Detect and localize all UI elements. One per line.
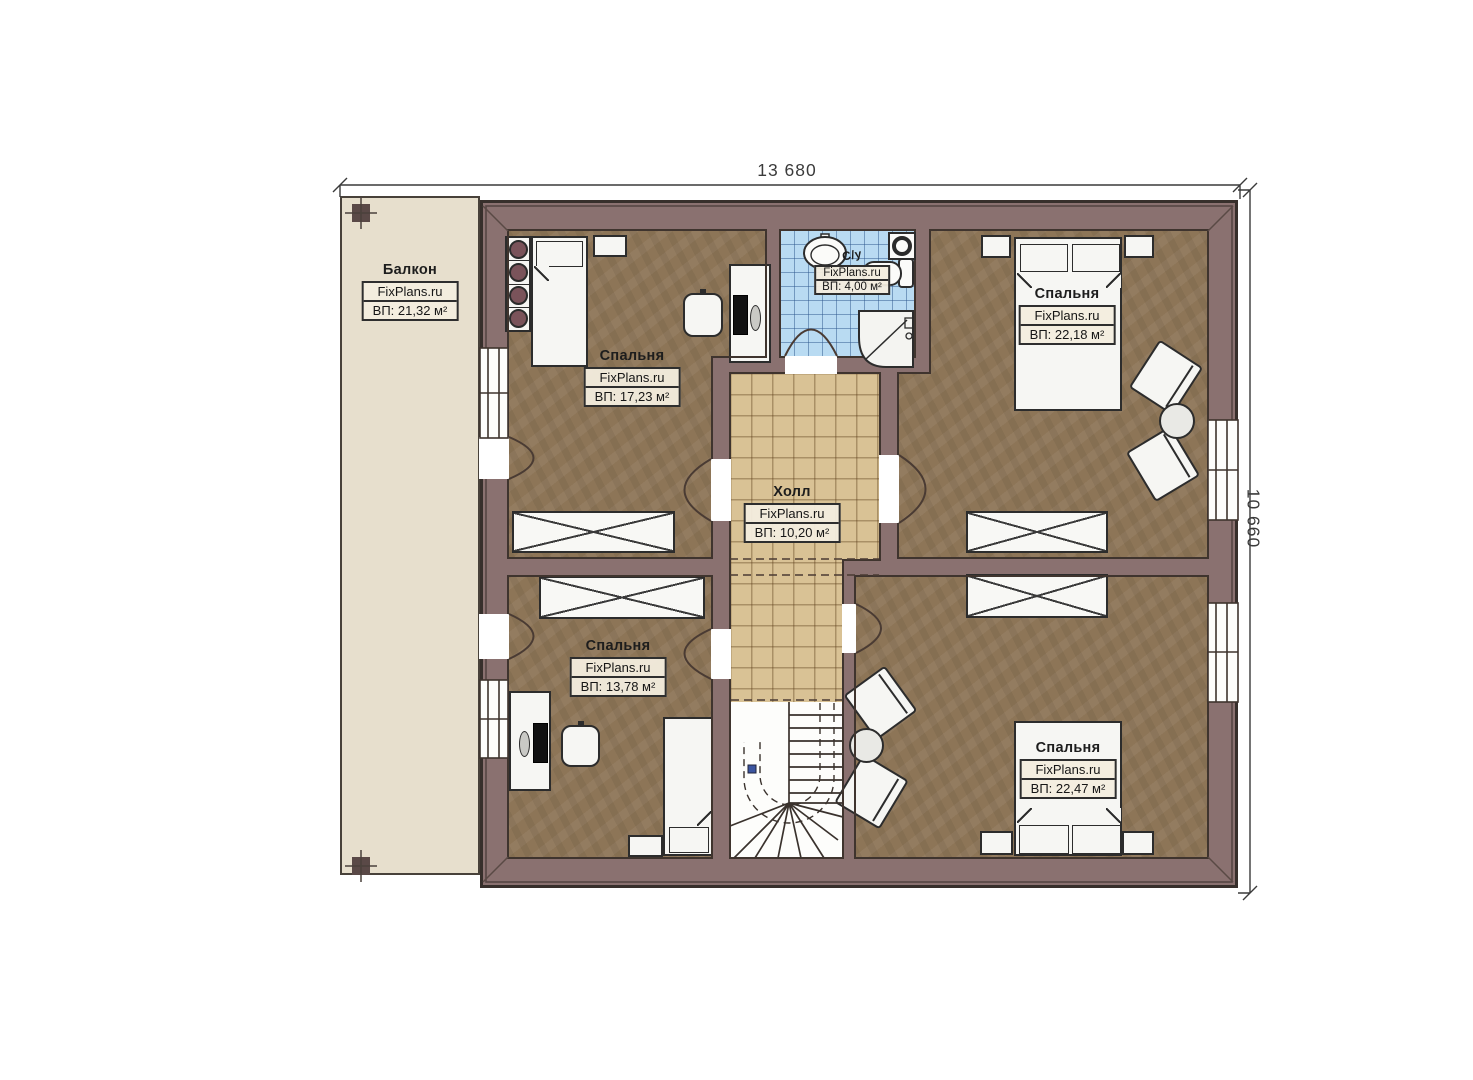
- shelf-unit-icon: [505, 236, 531, 332]
- pillow-icon: [669, 827, 709, 853]
- room-area: ВП: 4,00 м²: [816, 279, 888, 293]
- dimension-label-width: 13 680: [727, 160, 847, 181]
- room-name: Спальня: [1035, 286, 1100, 302]
- room-name: Холл: [773, 484, 811, 500]
- knob-icon: [509, 309, 528, 328]
- room-info-box: FixPlans.ru ВП: 22,47 м²: [1020, 759, 1117, 799]
- watermark: FixPlans.ru: [1022, 761, 1115, 778]
- pillow-icon: [1072, 244, 1120, 272]
- shelf-cell: [507, 285, 529, 308]
- watermark: FixPlans.ru: [816, 267, 888, 279]
- blanket-fold-icon: [1017, 808, 1032, 823]
- monitor-icon: [733, 295, 748, 335]
- nightstand-icon: [1122, 831, 1154, 855]
- pillow-icon: [1019, 825, 1069, 854]
- nightstand-icon: [628, 835, 663, 857]
- watermark: FixPlans.ru: [364, 283, 457, 300]
- watermark: FixPlans.ru: [586, 369, 679, 386]
- room-info-box: FixPlans.ru ВП: 21,32 м²: [362, 281, 459, 321]
- room-name: Спальня: [600, 348, 665, 364]
- knob-icon: [509, 286, 528, 305]
- room-name: Балкон: [383, 262, 437, 278]
- room-info-box: FixPlans.ru ВП: 4,00 м²: [814, 265, 890, 295]
- keyboard-icon: [519, 731, 530, 757]
- blanket-fold-icon: [1106, 808, 1121, 823]
- desk-chair-icon: [683, 293, 723, 337]
- room-area: ВП: 22,18 м²: [1021, 324, 1114, 343]
- watermark: FixPlans.ru: [1021, 307, 1114, 324]
- balcony-column-marker-bottom: [352, 857, 370, 875]
- room-area: ВП: 22,47 м²: [1022, 778, 1115, 797]
- room-info-box: FixPlans.ru ВП: 22,18 м²: [1019, 305, 1116, 345]
- room-info-box: FixPlans.ru ВП: 13,78 м²: [570, 657, 667, 697]
- bed-icon: [663, 717, 713, 856]
- room-info-box: FixPlans.ru ВП: 17,23 м²: [584, 367, 681, 407]
- dimension-label-height: 10 660: [1243, 484, 1264, 554]
- wardrobe-icon: [966, 511, 1108, 553]
- bathroom-wall-right: [915, 230, 930, 373]
- wardrobe-icon: [539, 576, 705, 619]
- nightstand-icon: [981, 235, 1011, 258]
- nightstand-icon: [593, 235, 627, 257]
- room-name: Спальня: [1036, 740, 1101, 756]
- room-name: С/у: [841, 247, 863, 264]
- floor-plan: Балкон FixPlans.ru ВП: 21,32 м² Спальня …: [0, 0, 1473, 1080]
- room-name: Спальня: [586, 638, 651, 654]
- monitor-icon: [533, 723, 548, 763]
- nightstand-icon: [980, 831, 1013, 855]
- room-area: ВП: 21,32 м²: [364, 300, 457, 319]
- bedroom-top-right-label: Спальня FixPlans.ru ВП: 22,18 м²: [1019, 286, 1116, 345]
- nightstand-icon: [1124, 235, 1154, 258]
- balcony-label: Балкон FixPlans.ru ВП: 21,32 м²: [362, 262, 459, 321]
- pillow-icon: [1020, 244, 1068, 272]
- shelf-cell: [507, 238, 529, 261]
- shelf-cell: [507, 261, 529, 284]
- knob-icon: [509, 240, 528, 259]
- watermark: FixPlans.ru: [746, 505, 839, 522]
- desk-chair-icon: [561, 725, 600, 767]
- blanket-fold-icon: [534, 266, 549, 281]
- bedroom-bottom-left-label: Спальня FixPlans.ru ВП: 13,78 м²: [570, 638, 667, 697]
- bedroom-top-left-label: Спальня FixPlans.ru ВП: 17,23 м²: [584, 348, 681, 407]
- room-area: ВП: 13,78 м²: [572, 676, 665, 695]
- side-table-icon: [849, 728, 884, 763]
- bed-icon: [531, 236, 588, 367]
- pillow-icon: [1072, 825, 1121, 854]
- hall-label: Холл FixPlans.ru ВП: 10,20 м²: [744, 484, 841, 543]
- bedroom-bottom-right-label: Спальня FixPlans.ru ВП: 22,47 м²: [1020, 740, 1117, 799]
- stairwell: [730, 702, 843, 858]
- side-table-icon: [1159, 403, 1195, 439]
- watermark: FixPlans.ru: [572, 659, 665, 676]
- room-area: ВП: 10,20 м²: [746, 522, 839, 541]
- bathroom-label: С/у FixPlans.ru ВП: 4,00 м²: [814, 248, 890, 295]
- wardrobe-icon: [966, 574, 1108, 618]
- shelf-cell: [507, 308, 529, 330]
- knob-icon: [509, 263, 528, 282]
- blanket-fold-icon: [697, 811, 712, 826]
- wardrobe-icon: [512, 511, 675, 553]
- keyboard-icon: [750, 305, 761, 331]
- balcony-column-marker-top: [352, 204, 370, 222]
- pillow-icon: [536, 241, 583, 267]
- room-area: ВП: 17,23 м²: [586, 386, 679, 405]
- room-info-box: FixPlans.ru ВП: 10,20 м²: [744, 503, 841, 543]
